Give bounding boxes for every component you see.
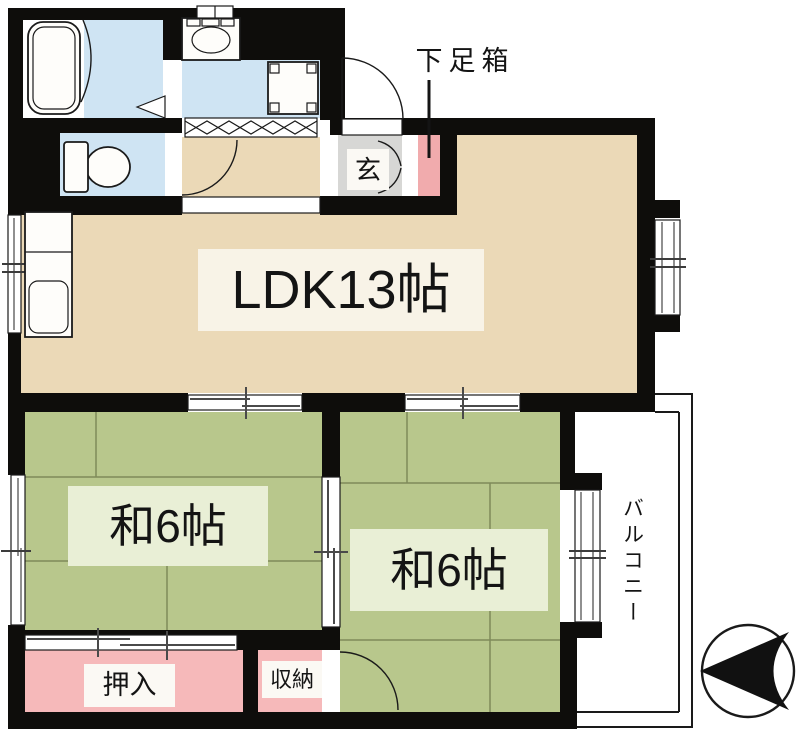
entrance-door bbox=[342, 58, 403, 135]
bathroom-doorway bbox=[163, 60, 182, 118]
wall-segment bbox=[320, 196, 457, 215]
wall-segment bbox=[8, 393, 25, 475]
wall-segment bbox=[8, 712, 577, 729]
ldk-side-window bbox=[650, 220, 686, 315]
ldk-floor-upper bbox=[457, 135, 637, 215]
wall-segment bbox=[8, 393, 188, 412]
wall-segment bbox=[637, 118, 655, 412]
annotation-shoe-box: 下足箱 bbox=[412, 45, 518, 77]
kitchen-counter bbox=[25, 212, 72, 337]
wall-segment bbox=[243, 650, 258, 712]
wall-segment bbox=[560, 473, 602, 490]
entrance-step-zigzag bbox=[185, 118, 317, 137]
toilet bbox=[64, 142, 130, 192]
wall-segment bbox=[240, 18, 330, 60]
hallway-floor bbox=[182, 137, 320, 199]
wall-segment bbox=[8, 133, 60, 197]
wall-segment bbox=[8, 118, 182, 133]
right-room-doorway bbox=[322, 650, 340, 712]
room-label-storage: 収納 bbox=[262, 661, 322, 698]
compass-north-arrow bbox=[700, 625, 794, 717]
room-label-balcony: バルコニー bbox=[616, 467, 648, 657]
washing-machine-pan bbox=[268, 62, 318, 114]
balcony-window bbox=[569, 490, 606, 622]
bathtub bbox=[28, 22, 80, 114]
wall-segment bbox=[560, 638, 577, 712]
room-label-closet: 押入 bbox=[84, 664, 175, 707]
wall-segment bbox=[163, 18, 182, 60]
wall-segment bbox=[322, 627, 340, 650]
wall-segment bbox=[8, 8, 23, 118]
wall-segment bbox=[302, 393, 405, 412]
hall-entrance-opening bbox=[320, 137, 338, 196]
wall-segment bbox=[440, 120, 457, 196]
floor-plan: LDK13帖 和6帖 和6帖 押入 収納 玄 下足箱 バルコニー bbox=[0, 0, 800, 729]
floor-plan-drawing bbox=[0, 0, 800, 729]
room-label-japanese-left: 和6帖 bbox=[68, 486, 268, 566]
wall-segment bbox=[322, 412, 340, 477]
hall-ldk-opening bbox=[182, 197, 320, 213]
toilet-doorway bbox=[165, 138, 182, 196]
room-label-ldk: LDK13帖 bbox=[198, 249, 484, 331]
room-label-entrance: 玄 bbox=[347, 149, 389, 190]
wall-segment bbox=[320, 8, 345, 120]
vanity-basin bbox=[182, 18, 240, 60]
entrance-shoebox-opening bbox=[402, 135, 418, 196]
wall-niche bbox=[197, 6, 233, 18]
wall-segment bbox=[560, 622, 602, 638]
room-label-japanese-right: 和6帖 bbox=[350, 529, 548, 611]
wall-segment bbox=[560, 412, 575, 473]
wall-segment bbox=[655, 200, 680, 218]
wall-segment bbox=[520, 393, 655, 412]
wall-segment bbox=[655, 315, 680, 332]
